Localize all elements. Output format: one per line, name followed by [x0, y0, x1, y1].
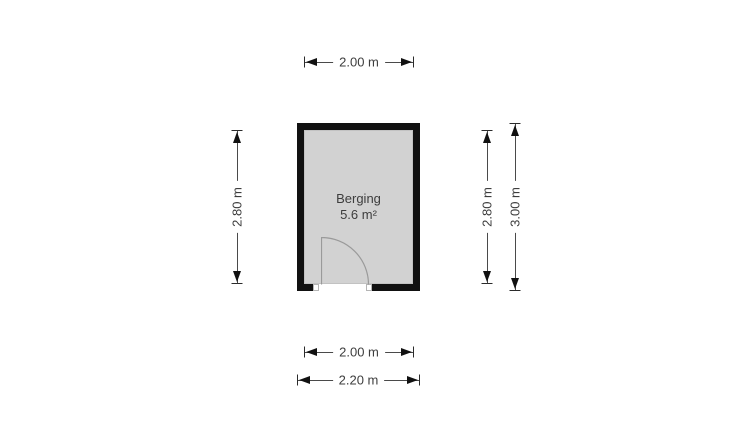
dimension-label: 3.00 m — [508, 181, 523, 233]
dimension-label: 2.00 m — [333, 55, 385, 70]
door-jamb-left — [313, 284, 319, 291]
dimension-end-tick — [232, 283, 243, 284]
room-berging: Berging 5.6 m² — [297, 123, 420, 291]
arrow-right-icon — [401, 348, 412, 356]
dimension-end-tick — [304, 347, 305, 358]
arrow-down-icon — [233, 271, 241, 282]
arrow-up-icon — [483, 132, 491, 143]
dimension-end-tick — [232, 130, 243, 131]
dimension-end-tick — [297, 375, 298, 386]
dimension-right-outer-height: 3.00 m — [505, 123, 525, 291]
arrow-left-icon — [306, 58, 317, 66]
room-area: 5.6 m² — [336, 206, 381, 222]
arrow-right-icon — [407, 376, 418, 384]
dimension-end-tick — [413, 347, 414, 358]
floorplan-canvas: 2.00 m 2.80 m Berging 5.6 m² 2.80 m — [0, 0, 750, 441]
dimension-bottom-outer-width: 2.20 m — [297, 370, 420, 390]
arrow-down-icon — [511, 278, 519, 289]
arrow-up-icon — [511, 125, 519, 136]
arrow-left-icon — [306, 348, 317, 356]
dimension-bottom-inner-width: 2.00 m — [304, 342, 414, 362]
dimension-label: 2.00 m — [333, 345, 385, 360]
dimension-label: 2.80 m — [480, 181, 495, 233]
dimension-end-tick — [510, 123, 521, 124]
dimension-end-tick — [304, 57, 305, 68]
dimension-top-width: 2.00 m — [304, 52, 414, 72]
dimension-right-inner-height: 2.80 m — [477, 130, 497, 284]
dimension-end-tick — [510, 290, 521, 291]
arrow-up-icon — [233, 132, 241, 143]
arrow-down-icon — [483, 271, 491, 282]
dimension-label: 2.80 m — [230, 181, 245, 233]
dimension-end-tick — [482, 130, 493, 131]
door-jamb-right — [366, 284, 372, 291]
arrow-left-icon — [299, 376, 310, 384]
room-label: Berging 5.6 m² — [336, 191, 381, 222]
dimension-end-tick — [482, 283, 493, 284]
room-name: Berging — [336, 191, 381, 207]
door-swing-icon — [321, 237, 369, 285]
dimension-left-height: 2.80 m — [227, 130, 247, 284]
door-opening — [314, 284, 372, 291]
dimension-label: 2.20 m — [333, 373, 385, 388]
dimension-end-tick — [413, 57, 414, 68]
dimension-end-tick — [419, 375, 420, 386]
arrow-right-icon — [401, 58, 412, 66]
